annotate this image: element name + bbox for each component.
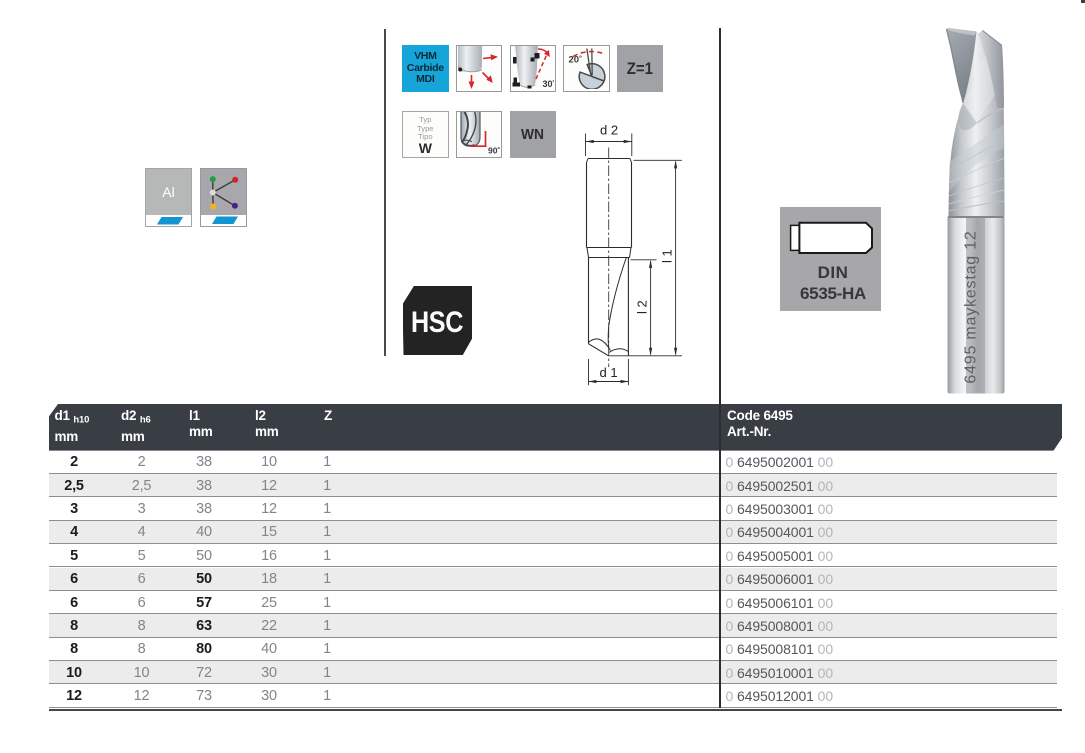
svg-text:30˚: 30˚ (542, 79, 554, 89)
svg-text:d 1: d 1 (600, 365, 618, 380)
svg-text:6495 maykestag 12: 6495 maykestag 12 (963, 230, 980, 383)
svg-text:20˚: 20˚ (569, 55, 583, 66)
svg-text:90˚: 90˚ (488, 146, 500, 156)
svg-text:l 2: l 2 (635, 300, 650, 314)
svg-text:DIN: DIN (818, 263, 849, 282)
svg-text:6535-HA: 6535-HA (800, 284, 866, 303)
svg-text:d 2: d 2 (600, 123, 618, 138)
svg-text:l 1: l 1 (660, 249, 675, 263)
